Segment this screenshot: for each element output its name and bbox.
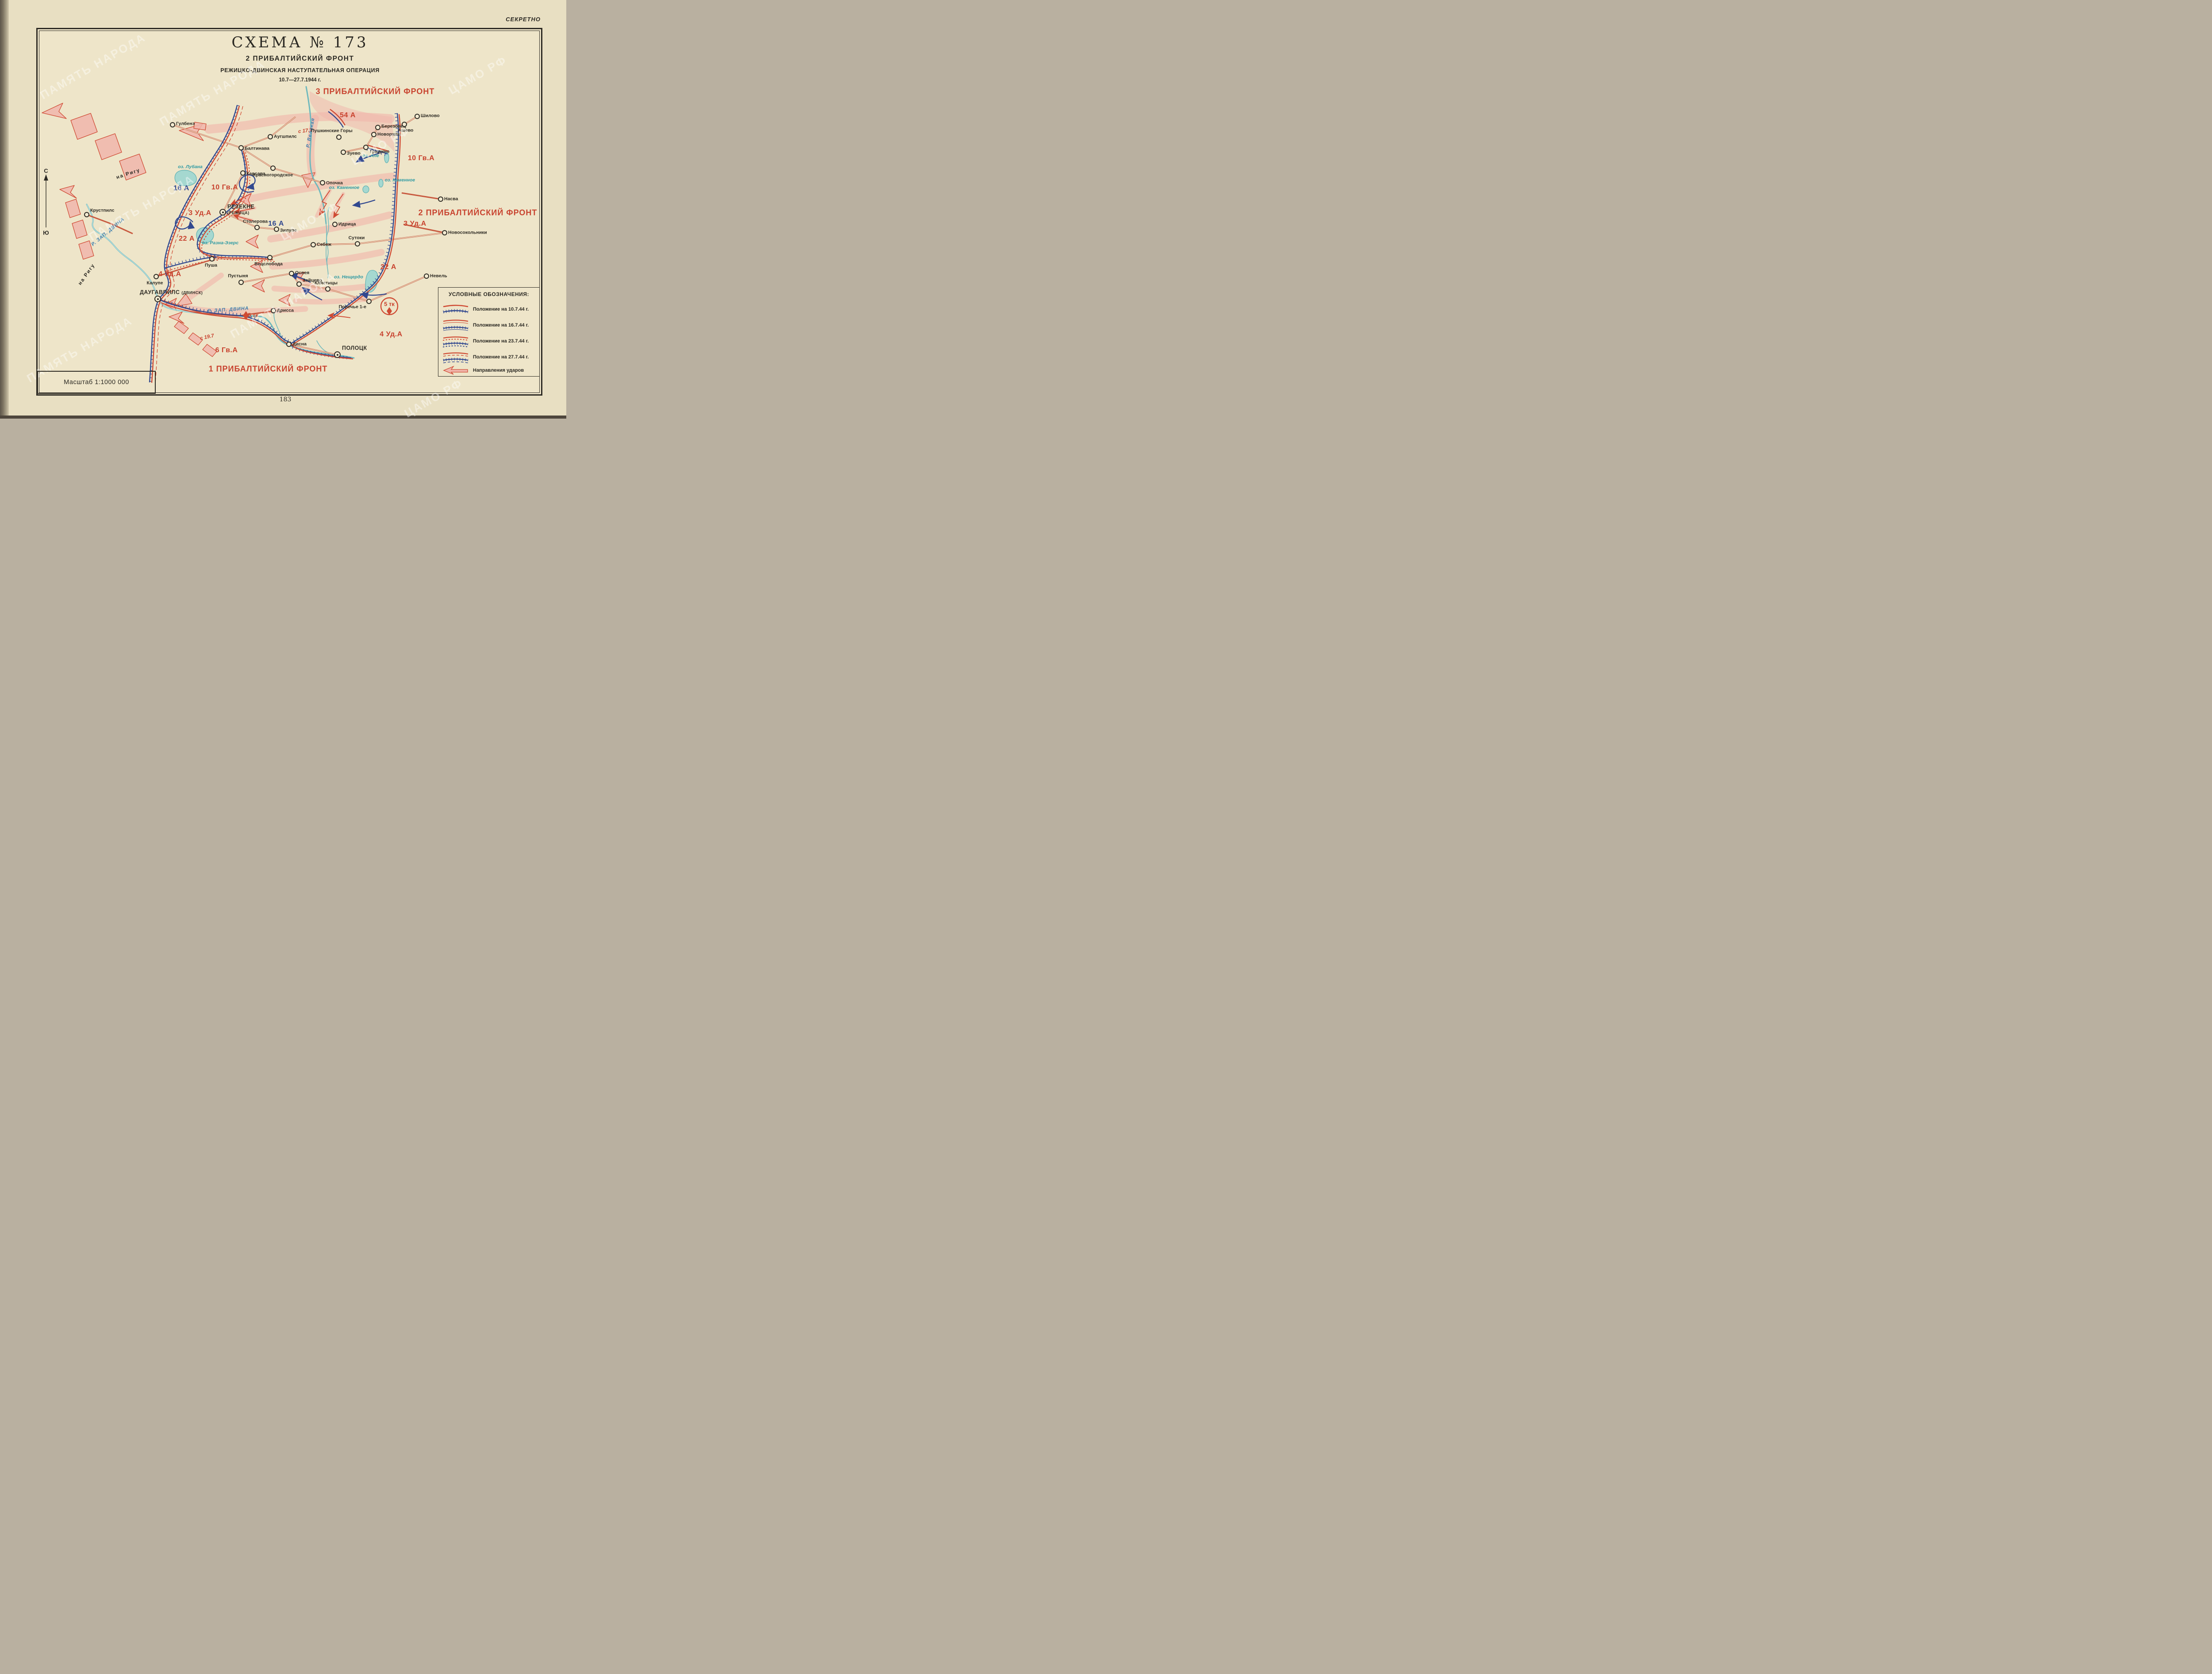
watermark: ЦАМО РФ <box>446 53 510 97</box>
town-marker <box>270 165 276 171</box>
town-marker <box>267 255 273 260</box>
town-label: РЕЗЕКНЕ(РЕЖИЦА) <box>227 204 254 216</box>
town-label: Невель <box>430 273 447 278</box>
front-label: 3 ПРИБАЛТИЙСКИЙ ФРОНТ <box>316 87 435 96</box>
town-marker <box>371 132 376 137</box>
town-marker <box>289 271 294 276</box>
town-label: Насва <box>444 196 458 201</box>
legend-symbol-attack-arrow <box>442 364 469 377</box>
town-label: Клястицы <box>315 281 338 285</box>
town-marker <box>402 122 407 127</box>
date-annotation: с 19.7 <box>200 333 215 341</box>
town-marker <box>311 242 316 247</box>
compass-south-label: Ю <box>43 230 49 236</box>
watermark: ПАМЯТЬ НАРОДА <box>38 31 148 102</box>
town-label: Себеж <box>317 242 331 247</box>
town-label: Идрица <box>338 222 356 227</box>
town-label: ДАУГАВПИЛС (ДВИНСК) <box>140 289 203 295</box>
map-page: СЕКРЕТНО <box>0 0 566 419</box>
unit-mark: 5 тк <box>248 312 258 319</box>
front-label: 1 ПРИБАЛТИЙСКИЙ ФРОНТ <box>209 365 328 374</box>
map-subtitle-front: 2 ПРИБАЛТИЙСКИЙ ФРОНТ <box>246 55 354 63</box>
army-label: 10 Гв.А <box>211 184 238 192</box>
compass-north-label: С <box>44 168 48 174</box>
legend-title: УСЛОВНЫЕ ОБОЗНАЧЕНИЯ: <box>438 291 539 297</box>
town-label: Новоржев <box>377 132 401 137</box>
town-label: Новосокольники <box>448 230 487 235</box>
town-label: Вецслобода <box>254 262 283 266</box>
town-label: Дисна <box>292 342 307 346</box>
town-label: Поречье 1-е <box>339 304 366 309</box>
town-label: Опочка <box>326 181 343 185</box>
water-label: оз. Лубана <box>178 164 202 169</box>
direction-label: на Ригу <box>115 168 141 181</box>
town-label: Пустыня <box>228 273 248 278</box>
town-marker <box>442 230 447 235</box>
water-label: Р. ЗАП. ДВИНА <box>90 216 125 247</box>
town-label: ПОЛОЦК <box>342 345 367 351</box>
army-label: 22 А <box>380 263 396 271</box>
town-marker <box>238 145 244 150</box>
town-marker <box>355 241 360 246</box>
army-label: 10 Гв.А <box>408 154 434 162</box>
watermark: ЦАМО РФ <box>402 376 465 419</box>
legend-label: Положение на 16.7.44 г. <box>473 323 529 328</box>
town-marker <box>154 274 159 279</box>
legend-symbol-position-23-7 <box>442 335 469 348</box>
town-marker <box>219 209 226 216</box>
town-marker <box>170 122 175 127</box>
town-label: Красногородское <box>253 173 293 177</box>
town-label: Гулбенэ <box>176 121 195 126</box>
town-label: Пуша <box>205 263 217 268</box>
legend-symbol-position-10-7 <box>442 303 469 316</box>
town-label: Зилупе <box>280 228 297 233</box>
army-label: 22 А <box>179 235 195 243</box>
town-marker <box>154 296 161 302</box>
town-marker <box>274 227 279 232</box>
town-label: Столерова <box>243 219 268 224</box>
front-label: 2 ПРИБАЛТИЙСКИЙ ФРОНТ <box>419 208 538 218</box>
town-marker <box>268 134 273 139</box>
town-label: Сутоки <box>349 235 365 240</box>
town-label: Освея <box>295 270 309 275</box>
map-title: СХЕМА № 173 <box>231 34 368 51</box>
map-subtitle-dates: 10.7—27.7.1944 г. <box>279 77 321 83</box>
town-marker <box>334 351 341 358</box>
town-label: Шилово <box>421 113 440 118</box>
scale-box: Масштаб 1:1000 000 <box>37 371 156 394</box>
direction-label: на Ригу <box>77 262 96 286</box>
army-label: 3 Уд.А <box>188 209 211 217</box>
town-label: Ашево <box>398 128 414 133</box>
water-label: оз. Каменное <box>329 185 359 190</box>
army-label: 16 А <box>173 185 189 192</box>
legend-label: Положение на 27.7.44 г. <box>473 354 529 360</box>
legend-symbol-position-27-7 <box>442 350 469 364</box>
unit-mark: 5 тк <box>384 301 395 308</box>
legend-symbol-position-16-7 <box>442 319 469 332</box>
town-label: Пушкинские Горы <box>311 128 353 133</box>
army-label: 3 Уд.А <box>403 220 426 228</box>
town-marker <box>325 286 330 292</box>
page-number: 183 <box>280 396 292 403</box>
legend-label: Направления ударов <box>473 368 524 373</box>
town-marker <box>341 150 346 155</box>
town-marker <box>424 273 429 279</box>
legend-box: УСЛОВНЫЕ ОБОЗНАЧЕНИЯ: Положение на 10.7.… <box>438 287 540 377</box>
town-marker <box>375 125 380 130</box>
army-label: 6 Гв.А <box>215 346 238 354</box>
map-subtitle-operation: РЕЖИЦКО-ДВИНСКАЯ НАСТУПАТЕЛЬНАЯ ОПЕРАЦИЯ <box>220 67 380 73</box>
town-label: Калупе <box>147 281 163 285</box>
town-marker <box>84 212 89 217</box>
town-label: Дрисса <box>277 308 294 313</box>
town-marker <box>209 256 215 262</box>
town-marker <box>332 222 338 227</box>
town-marker <box>296 281 302 287</box>
town-marker <box>271 308 276 313</box>
town-marker <box>363 145 369 150</box>
town-label: Гридино <box>370 149 389 154</box>
town-marker <box>415 114 420 119</box>
town-marker <box>336 135 342 140</box>
town-marker <box>366 299 372 304</box>
army-label: 54 А <box>340 112 356 119</box>
water-label: оз. Разна-Эзерс <box>202 240 238 246</box>
army-label: 4 Уд.А <box>158 270 181 278</box>
water-label: Р. ЗАП. ДВИНА <box>207 306 249 314</box>
watermark: ЦАМО РФ <box>278 199 342 243</box>
town-marker <box>438 196 443 202</box>
water-label: оз. Каменное <box>385 177 415 183</box>
town-marker <box>240 170 246 176</box>
town-marker <box>254 225 260 230</box>
legend-label: Положение на 10.7.44 г. <box>473 307 529 312</box>
town-label: Зуево <box>347 151 361 156</box>
town-marker <box>238 280 244 285</box>
water-label: оз. Нещердо <box>334 274 363 280</box>
town-label: Балтинава <box>245 146 269 151</box>
army-label: 4 Уд.А <box>380 331 402 339</box>
town-label: Крустпилс <box>90 208 114 213</box>
town-label: Аугшпилс <box>274 134 297 139</box>
town-marker <box>286 342 292 347</box>
town-marker <box>320 180 325 185</box>
legend-label: Положение на 23.7.44 г. <box>473 339 529 344</box>
